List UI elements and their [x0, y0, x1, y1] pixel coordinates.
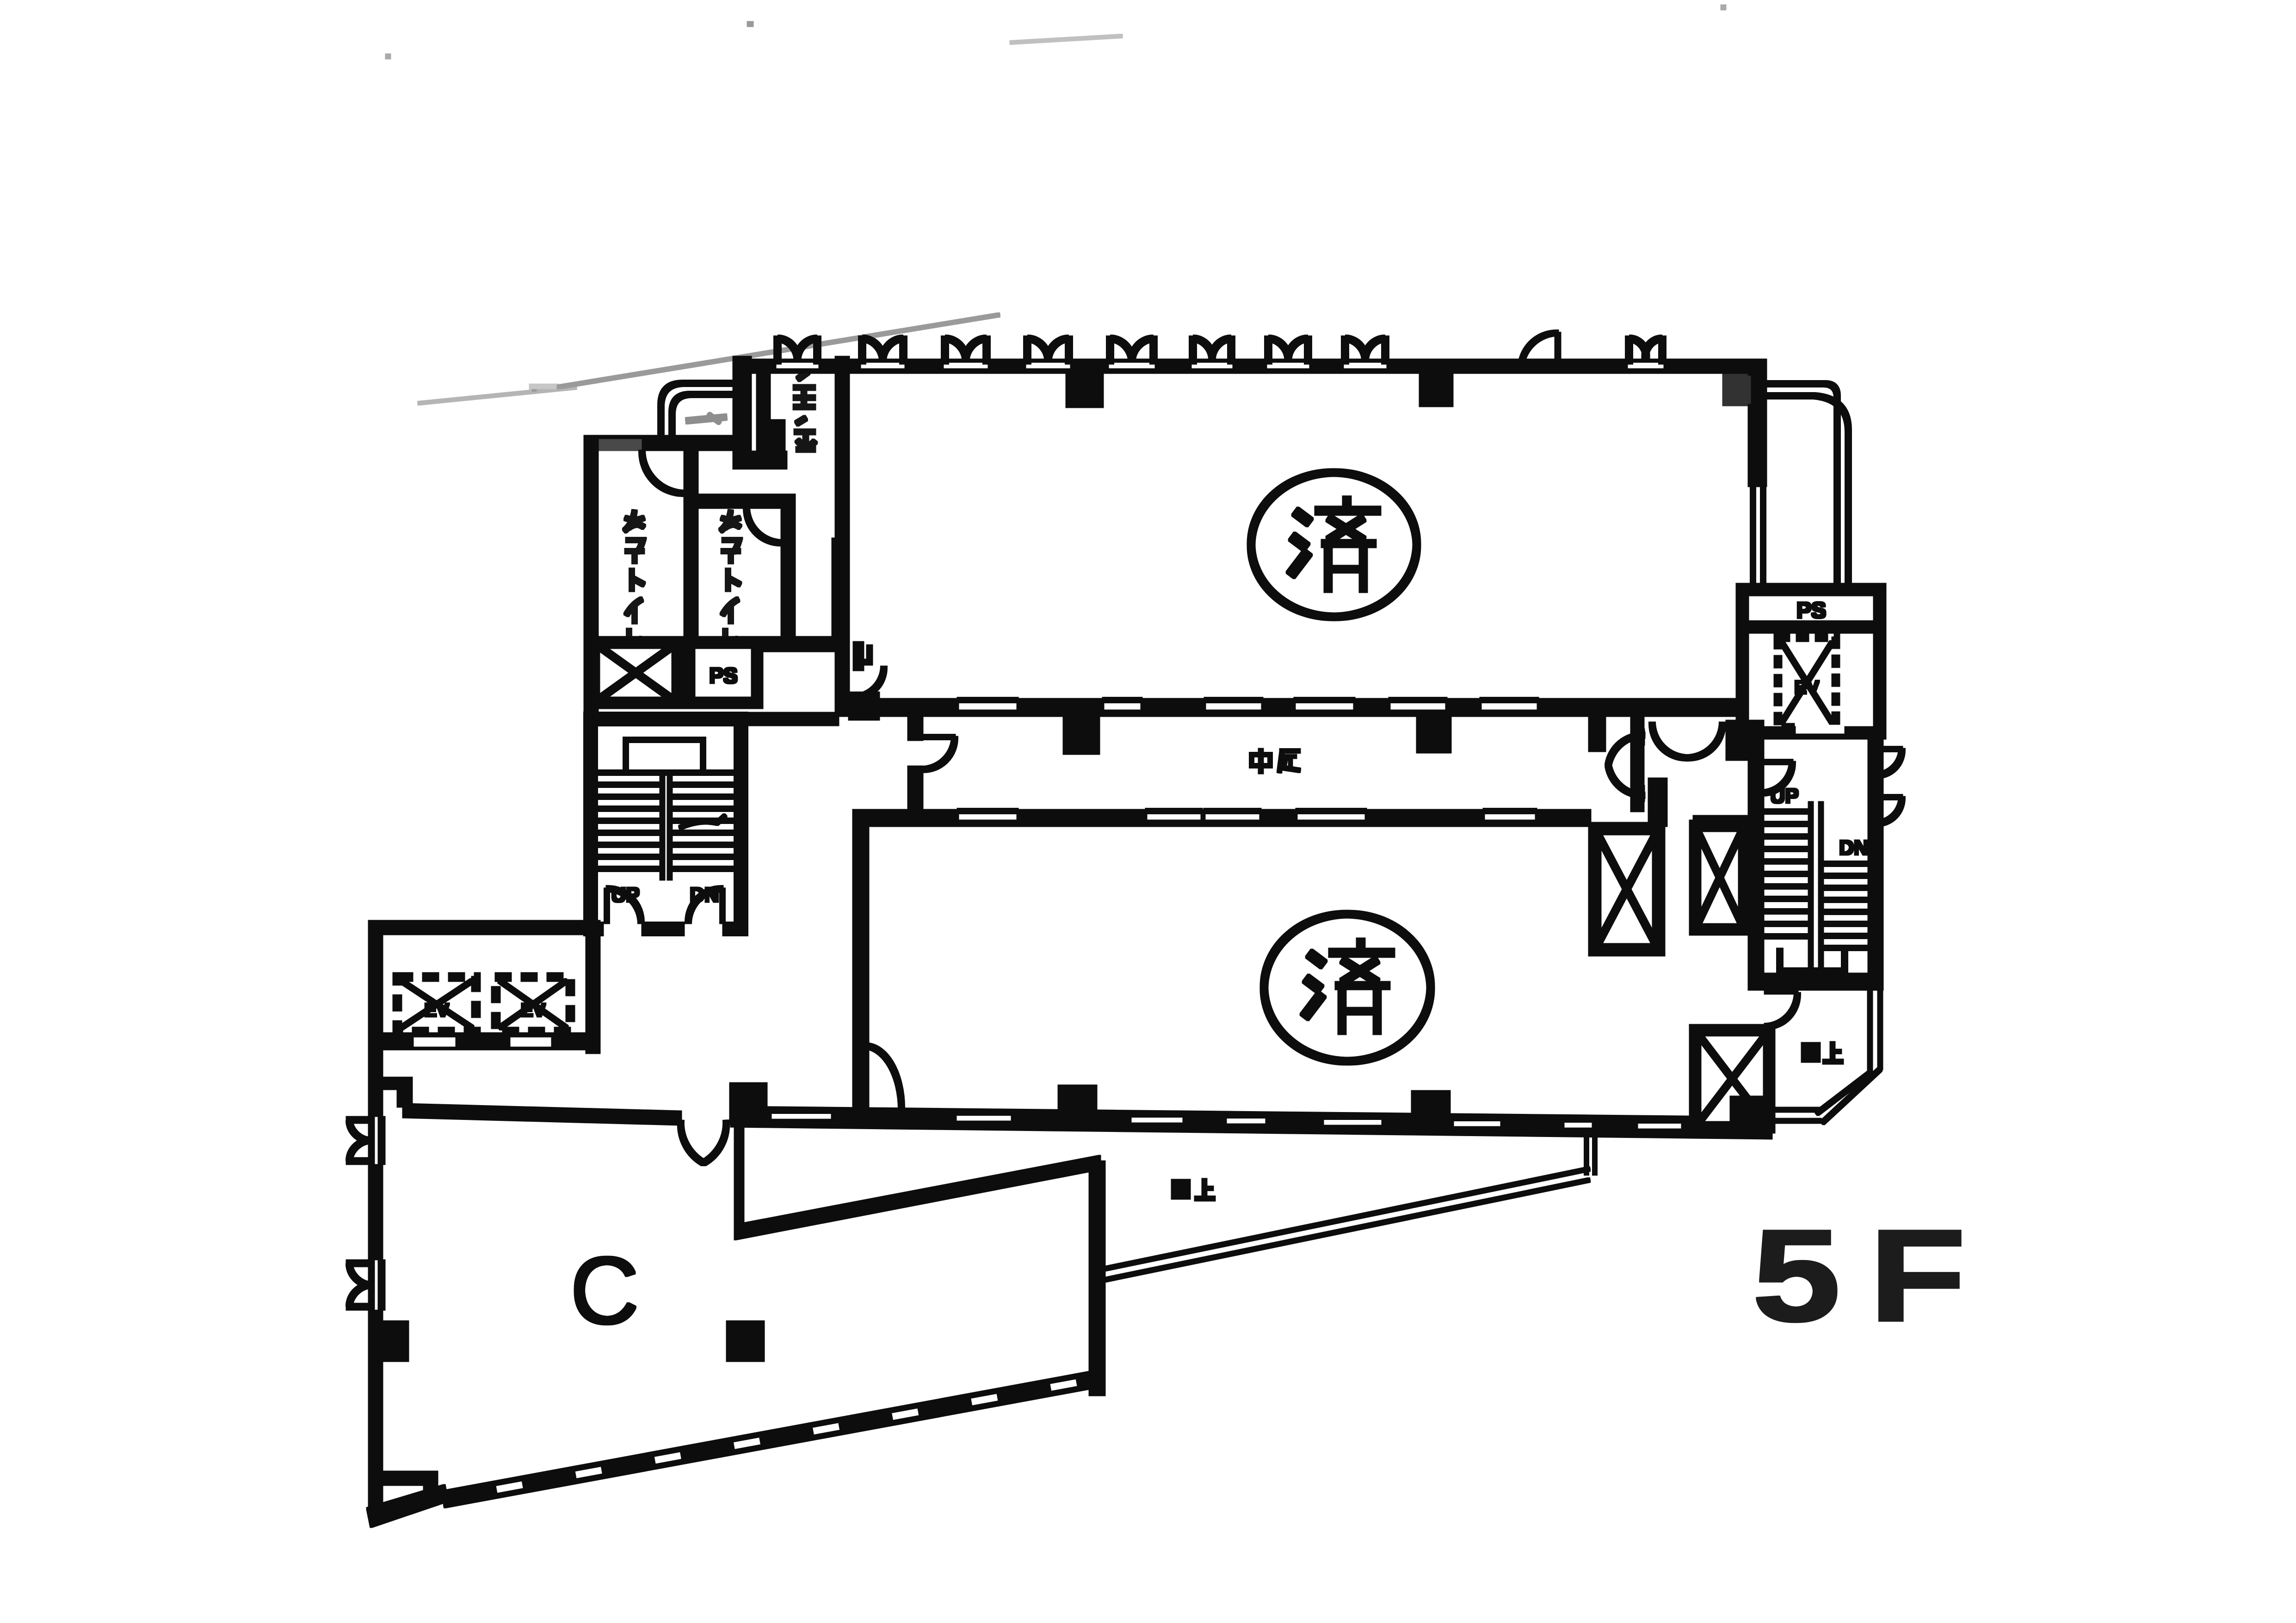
- svg-text:5F: 5F: [1752, 1202, 1994, 1348]
- svg-text:EV: EV: [521, 1000, 546, 1021]
- svg-text:EV: EV: [1794, 677, 1819, 698]
- svg-text:PS: PS: [1796, 598, 1826, 623]
- svg-text:UP: UP: [1770, 785, 1798, 807]
- svg-text:PS: PS: [709, 664, 737, 688]
- svg-text:DN: DN: [1839, 836, 1869, 859]
- svg-text:EV: EV: [424, 1000, 449, 1021]
- svg-text:C: C: [570, 1237, 639, 1344]
